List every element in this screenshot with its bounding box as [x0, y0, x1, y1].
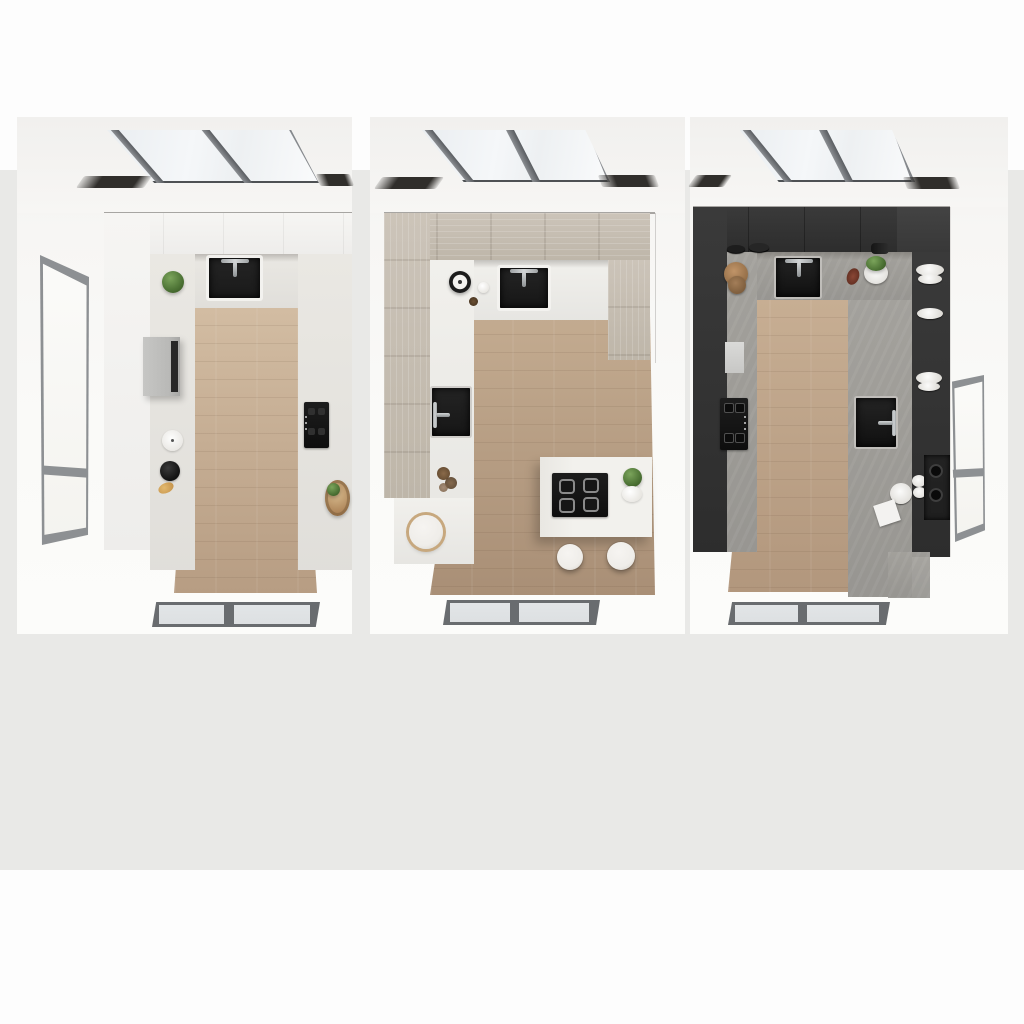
- prep-faucet: [876, 410, 896, 436]
- dish-stack: [918, 382, 940, 391]
- burner: [308, 408, 315, 415]
- left-tall-cabinets: [384, 213, 430, 498]
- dark-bottles: [871, 243, 889, 254]
- cooktop-controls: [305, 416, 307, 436]
- paper-roll: [162, 430, 183, 451]
- burner: [583, 497, 599, 512]
- black-bowl: [160, 461, 180, 481]
- dish-stack: [918, 274, 942, 284]
- faucet-spout: [522, 272, 526, 287]
- wood-floor: [174, 308, 317, 593]
- round-stool: [409, 515, 443, 549]
- skylight-frame-bar: [200, 128, 253, 183]
- kitchen-render-white: [17, 117, 352, 634]
- window-divider: [953, 468, 984, 478]
- render-canvas: [0, 0, 1024, 1024]
- burner: [724, 403, 734, 413]
- cooktop-controls: [744, 416, 746, 436]
- bar-stool: [557, 544, 583, 570]
- ceiling-recess: [598, 175, 659, 187]
- kitchen-render-graphite: [690, 117, 1008, 634]
- skylight-glass: [420, 130, 610, 182]
- upper-cabinets-right: [897, 207, 950, 252]
- burner: [724, 433, 734, 443]
- skylight-frame-bar: [505, 128, 541, 182]
- stacked-plates: [727, 243, 769, 257]
- kitchen-render-oak: [370, 117, 685, 634]
- burner: [559, 479, 575, 494]
- faucet: [785, 259, 813, 277]
- timer-dot: [458, 280, 462, 284]
- faucet-spout: [878, 421, 893, 425]
- built-in-cooktop: [720, 398, 748, 450]
- dish-stack: [917, 308, 943, 319]
- skylight-frame-bar: [741, 128, 793, 182]
- burner: [735, 403, 745, 413]
- white-bowl: [622, 486, 642, 502]
- wine-rack: [924, 455, 950, 520]
- floor-window: [152, 602, 320, 627]
- floor-window-pane: [159, 605, 224, 624]
- island-plant: [623, 468, 642, 487]
- floor-window-pane: [234, 605, 310, 624]
- faucet: [510, 269, 538, 287]
- prep-faucet: [433, 402, 451, 428]
- skylight-frame-bar: [423, 128, 475, 182]
- ceiling-recess: [374, 177, 444, 189]
- potted-plant: [864, 256, 888, 284]
- green-plant: [162, 271, 184, 293]
- right-tall-cabinets: [608, 260, 650, 360]
- bar-stool: [607, 542, 635, 570]
- white-appliance-panel: [725, 342, 744, 373]
- window-glass: [40, 255, 89, 545]
- burner: [583, 478, 599, 493]
- skylight-frame-bar: [109, 128, 165, 183]
- ceiling-recess: [316, 174, 354, 186]
- faucet-spout: [233, 262, 237, 277]
- skylight-glass: [738, 130, 915, 182]
- floor-window-pane: [519, 603, 589, 622]
- skylight-frame-bar: [818, 128, 854, 182]
- floor-window: [443, 600, 600, 625]
- island-cooktop: [552, 473, 608, 517]
- burner: [318, 408, 325, 415]
- wall-corner-line: [655, 213, 656, 363]
- built-in-cooktop: [304, 402, 329, 448]
- basket-plant: [327, 483, 340, 496]
- left-wall-window: [40, 255, 89, 545]
- skylight: [420, 130, 610, 182]
- dried-flowers: [435, 465, 460, 495]
- floor-window-pane: [450, 603, 510, 622]
- left-tall-cabinets: [693, 207, 727, 552]
- faucet-spout: [436, 413, 450, 417]
- skylight: [738, 130, 915, 182]
- burner: [308, 428, 315, 435]
- counter-step: [888, 552, 930, 598]
- burner: [318, 428, 325, 435]
- floor-window: [728, 602, 890, 625]
- right-wall-window: [951, 375, 985, 542]
- ceiling-recess: [76, 176, 152, 188]
- floor-window-pane: [807, 605, 879, 622]
- dried-sprig: [469, 297, 478, 306]
- cutting-board-small: [728, 276, 746, 294]
- left-countertop: [150, 254, 195, 570]
- steel-wall-box: [143, 337, 180, 396]
- faucet: [221, 259, 249, 277]
- faucet-spout: [797, 262, 801, 277]
- ceiling-recess: [903, 177, 960, 189]
- small-dish: [478, 282, 489, 293]
- burner: [559, 498, 575, 513]
- floor-window-pane: [735, 605, 798, 622]
